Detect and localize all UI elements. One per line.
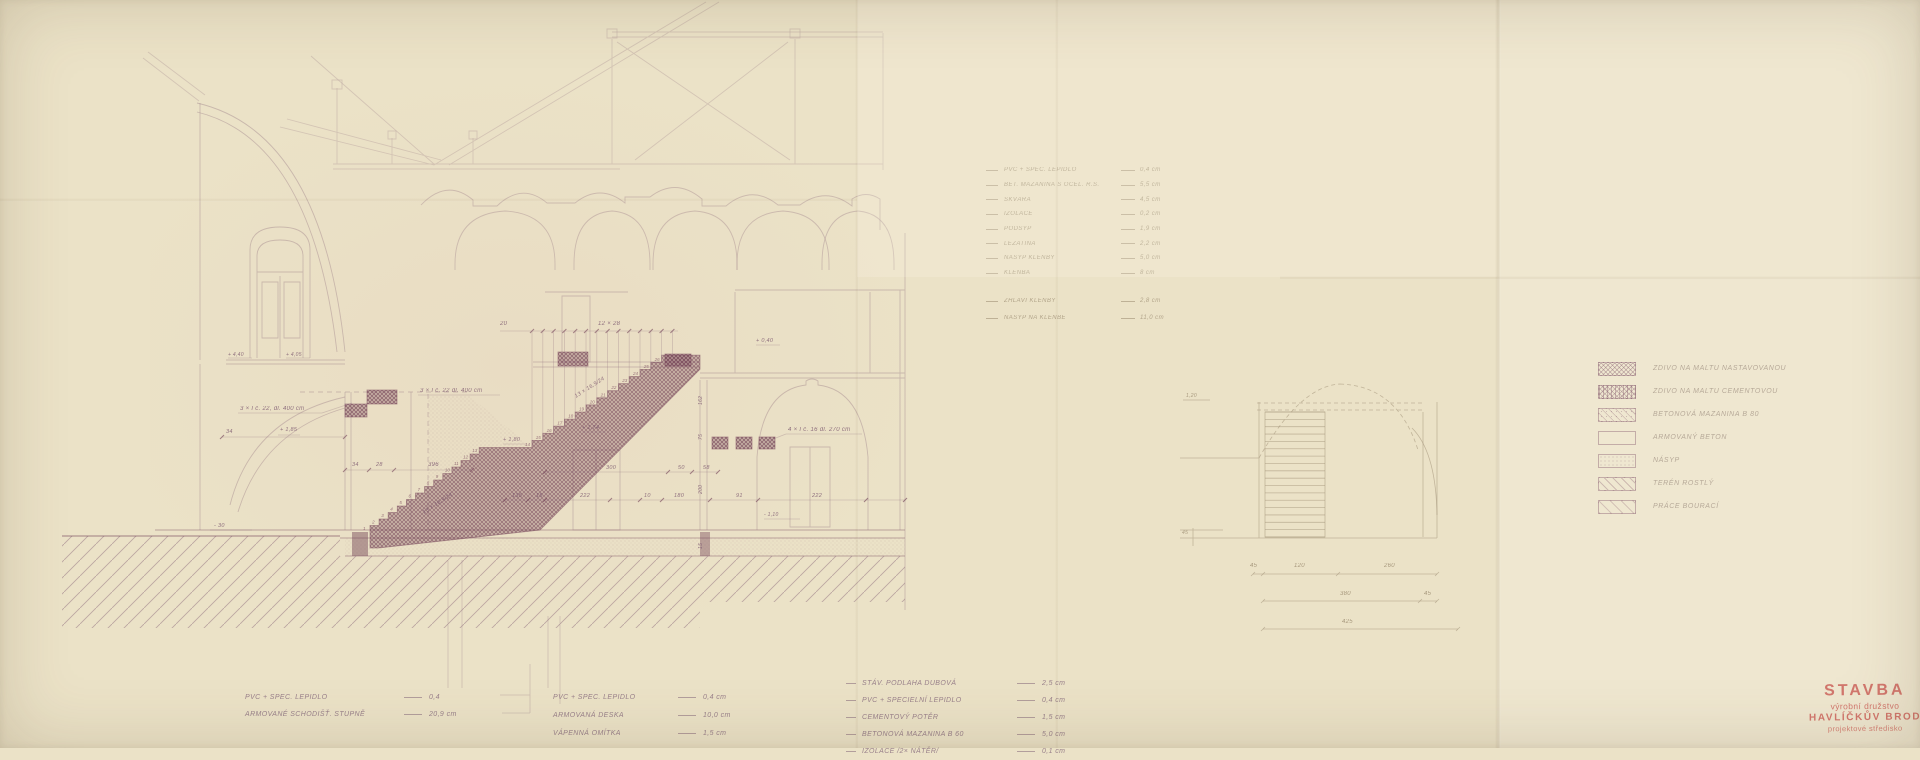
svg-text:15: 15 [698, 543, 704, 549]
spec-row: PVC + SPEC. LEPIDLO 0,4 cm [986, 163, 1191, 178]
spec-row: ZHLAVÍ KLENBY 2,8 cm [986, 293, 1191, 310]
svg-text:12: 12 [463, 455, 469, 460]
note-label: PVC + SPEC. LEPIDLO [553, 694, 671, 701]
note-label: PVC + SPEC. LEPIDLO [245, 694, 397, 701]
note-value: 10,0 cm [703, 712, 731, 719]
leader-dash [986, 301, 998, 302]
spec-row: NÁSYP KLENBY 5,0 cm [986, 251, 1191, 266]
svg-text:3: 3 [381, 513, 384, 518]
spec-row: IZOLACE 0,2 cm [986, 207, 1191, 222]
spec-list-main: PVC + SPEC. LEPIDLO 0,4 cm BET. MAZANINA… [986, 163, 1191, 281]
svg-text:28: 28 [375, 462, 383, 468]
stamp-city: HAVLÍČKŮV BROD [1808, 711, 1920, 725]
roof-truss [143, 2, 883, 170]
spec-label: PVC + SPEC. LEPIDLO [1004, 167, 1116, 173]
spec-label: NÁSYP NA KLENBĚ [1004, 315, 1116, 321]
leader-dash [1121, 170, 1135, 171]
leader-dash [1121, 318, 1135, 319]
legend-label: TERÉN ROSTLÝ [1653, 480, 1714, 487]
svg-text:11: 11 [454, 461, 459, 466]
legend-label: NÁSYP [1653, 457, 1680, 464]
leader-dash [1121, 243, 1135, 244]
svg-text:425: 425 [1342, 619, 1353, 625]
leader-dash [1017, 683, 1035, 684]
leader-dash [678, 697, 696, 698]
legend-swatch [1598, 362, 1636, 376]
note-row: BETONOVÁ MAZANINA B 60 5,0 cm [846, 726, 1065, 743]
leader-dash [986, 273, 998, 274]
legend-row: PRÁCE BOURACÍ [1598, 495, 1786, 518]
spec-row: NÁSYP NA KLENBĚ 11,0 cm [986, 310, 1191, 327]
svg-text:4: 4 [390, 507, 393, 512]
svg-text:- 1,10: - 1,10 [764, 512, 779, 518]
svg-text:135: 135 [512, 493, 523, 499]
svg-text:18: 18 [568, 414, 574, 419]
vault-arches [421, 187, 894, 270]
note-row: STÁV. PODLAHA DUBOVÁ 2,5 cm [846, 675, 1065, 692]
legend-row: NÁSYP [1598, 449, 1786, 472]
legend-row: BETONOVÁ MAZANINA B 80 [1598, 403, 1786, 426]
svg-text:+ 1,85: + 1,85 [280, 427, 298, 433]
leader-dash [1121, 258, 1135, 259]
legend-swatch [1598, 454, 1636, 468]
spec-value: 1,9 cm [1140, 226, 1161, 232]
svg-text:162: 162 [698, 396, 704, 405]
leader-dash [846, 717, 856, 718]
spec-label: KLENBA [1004, 270, 1116, 276]
note-label: IZOLACE /2× NÁTĚR/ [862, 748, 1010, 755]
svg-text:3 × I č. 22 dl. 400 cm: 3 × I č. 22 dl. 400 cm [420, 388, 482, 394]
note-label: VÁPENNÁ OMÍTKA [553, 730, 671, 737]
svg-text:222: 222 [811, 493, 822, 499]
leader-dash [1121, 273, 1135, 274]
notes-stair-layers: PVC + SPEC. LEPIDLO 0,4 ARMOVANÉ SCHODIŠ… [245, 689, 457, 723]
spec-label: ZHLAVÍ KLENBY [1004, 298, 1116, 304]
svg-text:+ 1,80: + 1,80 [503, 437, 521, 443]
note-row: ARMOVANÉ SCHODIŠŤ. STUPNĚ 20,9 cm [245, 706, 457, 723]
legend-row: ZDIVO NA MALTU NASTAVOVANOU [1598, 357, 1786, 380]
svg-text:+ 4,05: + 4,05 [286, 352, 302, 358]
svg-text:12 × 28: 12 × 28 [598, 321, 621, 327]
spec-value: 8 cm [1140, 270, 1155, 276]
svg-text:260: 260 [1383, 563, 1395, 569]
leader-dash [1017, 751, 1035, 752]
svg-text:4 × I č. 16 dl. 270 cm: 4 × I č. 16 dl. 270 cm [788, 427, 850, 433]
spec-value: 2,2 cm [1140, 241, 1161, 247]
svg-text:25: 25 [643, 364, 650, 369]
spec-value: 5,5 cm [1140, 182, 1161, 188]
spec-value: 2,8 cm [1140, 298, 1161, 304]
svg-text:19: 19 [579, 407, 585, 412]
svg-text:2: 2 [371, 520, 375, 525]
scanned-blueprint-sheet: 1234567891011121314151617181920212223242… [0, 0, 1920, 748]
note-row: PVC + SPEC. LEPIDLO 0,4 cm [553, 688, 731, 706]
note-label: STÁV. PODLAHA DUBOVÁ [862, 680, 1010, 687]
leader-dash [986, 170, 998, 171]
company-stamp: STAVBA výrobní družstvo HAVLÍČKŮV BROD p… [1808, 680, 1920, 734]
svg-text:13: 13 [472, 448, 478, 453]
svg-text:5: 5 [399, 500, 402, 505]
spec-row: KLENBA 8 cm [986, 266, 1191, 281]
svg-text:396: 396 [428, 462, 439, 468]
note-value: 2,5 cm [1042, 680, 1065, 687]
svg-text:45: 45 [1250, 563, 1258, 569]
stamp-title: STAVBA [1808, 680, 1920, 701]
leader-dash [404, 697, 422, 698]
leader-dash [986, 258, 998, 259]
leader-dash [846, 683, 856, 684]
svg-text:180: 180 [674, 493, 685, 499]
note-value: 0,4 cm [1042, 697, 1065, 704]
legend-swatch [1598, 477, 1636, 491]
spec-value: 0,2 cm [1140, 211, 1161, 217]
svg-text:17: 17 [557, 421, 563, 426]
spec-label: NÁSYP KLENBY [1004, 255, 1116, 261]
legend-label: ZDIVO NA MALTU CEMENTOVOU [1653, 388, 1778, 395]
stair-plan-detail [1180, 384, 1437, 546]
svg-text:3 × I č. 22, dl. 400 cm: 3 × I č. 22, dl. 400 cm [240, 406, 304, 412]
svg-text:34: 34 [226, 429, 233, 435]
svg-text:24: 24 [632, 371, 639, 376]
notes-landing-layers: PVC + SPEC. LEPIDLO 0,4 cm ARMOVANÁ DESK… [553, 688, 731, 742]
spec-label: IZOLACE [1004, 211, 1116, 217]
stamp-dept: projektové středisko [1808, 724, 1920, 735]
spec-value: 5,0 cm [1140, 255, 1161, 261]
svg-text:45: 45 [1182, 530, 1188, 536]
legend-swatch [1598, 431, 1636, 445]
note-value: 20,9 cm [429, 711, 457, 718]
svg-text:16: 16 [547, 428, 553, 433]
svg-text:20: 20 [589, 399, 596, 404]
spec-row: LEŽATINA 2,2 cm [986, 236, 1191, 251]
svg-text:380: 380 [1340, 591, 1351, 597]
leader-dash [986, 199, 998, 200]
note-row: IZOLACE /2× NÁTĚR/ 0,1 cm [846, 743, 1065, 760]
spec-value: 0,4 cm [1140, 167, 1161, 173]
note-row: PVC + SPEC. LEPIDLO 0,4 [245, 689, 457, 706]
leader-dash [1121, 185, 1135, 186]
svg-text:300: 300 [606, 465, 617, 471]
notes-floor-layers: STÁV. PODLAHA DUBOVÁ 2,5 cm PVC + SPECIE… [846, 675, 1065, 760]
note-label: CEMENTOVÝ POTĚR [862, 714, 1010, 721]
note-label: ARMOVANÁ DESKA [553, 712, 671, 719]
spec-label: ŠKVÁRA [1004, 197, 1116, 203]
note-row: ARMOVANÁ DESKA 10,0 cm [553, 706, 731, 724]
spec-label: BET. MAZANINA S OCEL. R.Š. [1004, 182, 1116, 188]
svg-text:50: 50 [678, 465, 685, 471]
svg-text:91: 91 [736, 493, 743, 499]
svg-text:222: 222 [579, 493, 590, 499]
legend-label: PRÁCE BOURACÍ [1653, 503, 1719, 510]
svg-text:21: 21 [600, 392, 607, 397]
note-value: 0,4 cm [703, 694, 726, 701]
leader-dash [1121, 214, 1135, 215]
svg-text:- 30: - 30 [214, 523, 225, 529]
spec-row: ŠKVÁRA 4,5 cm [986, 192, 1191, 207]
leader-dash [678, 733, 696, 734]
svg-text:34: 34 [352, 462, 359, 468]
spec-value: 4,5 cm [1140, 197, 1161, 203]
svg-text:+ 1,74: + 1,74 [582, 425, 599, 431]
leader-dash [1121, 199, 1135, 200]
staircase: 1234567891011121314151617181920212223242… [363, 355, 700, 548]
note-label: ARMOVANÉ SCHODIŠŤ. STUPNĚ [245, 711, 397, 718]
legend-label: ARMOVANÝ BETON [1653, 434, 1727, 441]
svg-text:14: 14 [525, 442, 531, 447]
svg-text:23: 23 [621, 378, 628, 383]
note-value: 5,0 cm [1042, 731, 1065, 738]
spec-label: PODSYP [1004, 226, 1116, 232]
note-value: 0,4 [429, 694, 440, 701]
svg-text:45: 45 [1424, 591, 1432, 597]
note-label: BETONOVÁ MAZANINA B 60 [862, 731, 1010, 738]
svg-text:10: 10 [644, 493, 651, 499]
note-label: PVC + SPECIELNÍ LEPIDLO [862, 697, 1010, 704]
spec-row: BET. MAZANINA S OCEL. R.Š. 5,5 cm [986, 178, 1191, 193]
material-legend: ZDIVO NA MALTU NASTAVOVANOU ZDIVO NA MAL… [1598, 357, 1786, 518]
svg-text:+ 0,40: + 0,40 [756, 338, 774, 344]
svg-text:120: 120 [1294, 563, 1305, 569]
svg-text:200: 200 [698, 485, 704, 495]
leader-dash [404, 714, 422, 715]
svg-text:7: 7 [418, 487, 421, 492]
leader-dash [986, 243, 998, 244]
svg-text:75: 75 [698, 434, 704, 440]
leader-dash [986, 318, 998, 319]
svg-text:15: 15 [536, 493, 543, 499]
spec-row: PODSYP 1,9 cm [986, 222, 1191, 237]
spec-value: 11,0 cm [1140, 315, 1164, 321]
legend-label: ZDIVO NA MALTU NASTAVOVANOU [1653, 365, 1786, 372]
leader-dash [1017, 700, 1035, 701]
legend-row: ARMOVANÝ BETON [1598, 426, 1786, 449]
legend-row: TERÉN ROSTLÝ [1598, 472, 1786, 495]
legend-swatch [1598, 408, 1636, 422]
legend-swatch [1598, 500, 1636, 514]
leader-dash [846, 751, 856, 752]
svg-text:20: 20 [499, 321, 508, 327]
leader-dash [678, 715, 696, 716]
leader-dash [986, 229, 998, 230]
note-value: 1,5 cm [1042, 714, 1065, 721]
svg-text:26: 26 [654, 357, 661, 362]
leader-dash [986, 185, 998, 186]
svg-text:1,20: 1,20 [1186, 393, 1197, 399]
note-row: PVC + SPECIELNÍ LEPIDLO 0,4 cm [846, 692, 1065, 709]
leader-dash [1121, 229, 1135, 230]
leader-dash [1017, 717, 1035, 718]
svg-text:22: 22 [610, 385, 617, 390]
note-row: CEMENTOVÝ POTĚR 1,5 cm [846, 709, 1065, 726]
pencil-spec-list: PVC + SPEC. LEPIDLO 0,4 cm BET. MAZANINA… [986, 163, 1191, 327]
leader-dash [1017, 734, 1035, 735]
note-row: VÁPENNÁ OMÍTKA 1,5 cm [553, 724, 731, 742]
leader-dash [986, 214, 998, 215]
leader-dash [846, 734, 856, 735]
note-value: 0,1 cm [1042, 748, 1065, 755]
legend-swatch [1598, 385, 1636, 399]
svg-text:58: 58 [703, 465, 710, 471]
svg-text:15: 15 [536, 435, 542, 440]
note-value: 1,5 cm [703, 730, 726, 737]
leader-dash [1121, 301, 1135, 302]
spec-list-extra: ZHLAVÍ KLENBY 2,8 cm NÁSYP NA KLENBĚ 11,… [986, 293, 1191, 327]
svg-text:+ 4,40: + 4,40 [228, 352, 244, 358]
legend-row: ZDIVO NA MALTU CEMENTOVOU [1598, 380, 1786, 403]
spec-label: LEŽATINA [1004, 241, 1116, 247]
left-vault-and-door [197, 103, 345, 530]
leader-dash [846, 700, 856, 701]
legend-label: BETONOVÁ MAZANINA B 80 [1653, 411, 1759, 418]
